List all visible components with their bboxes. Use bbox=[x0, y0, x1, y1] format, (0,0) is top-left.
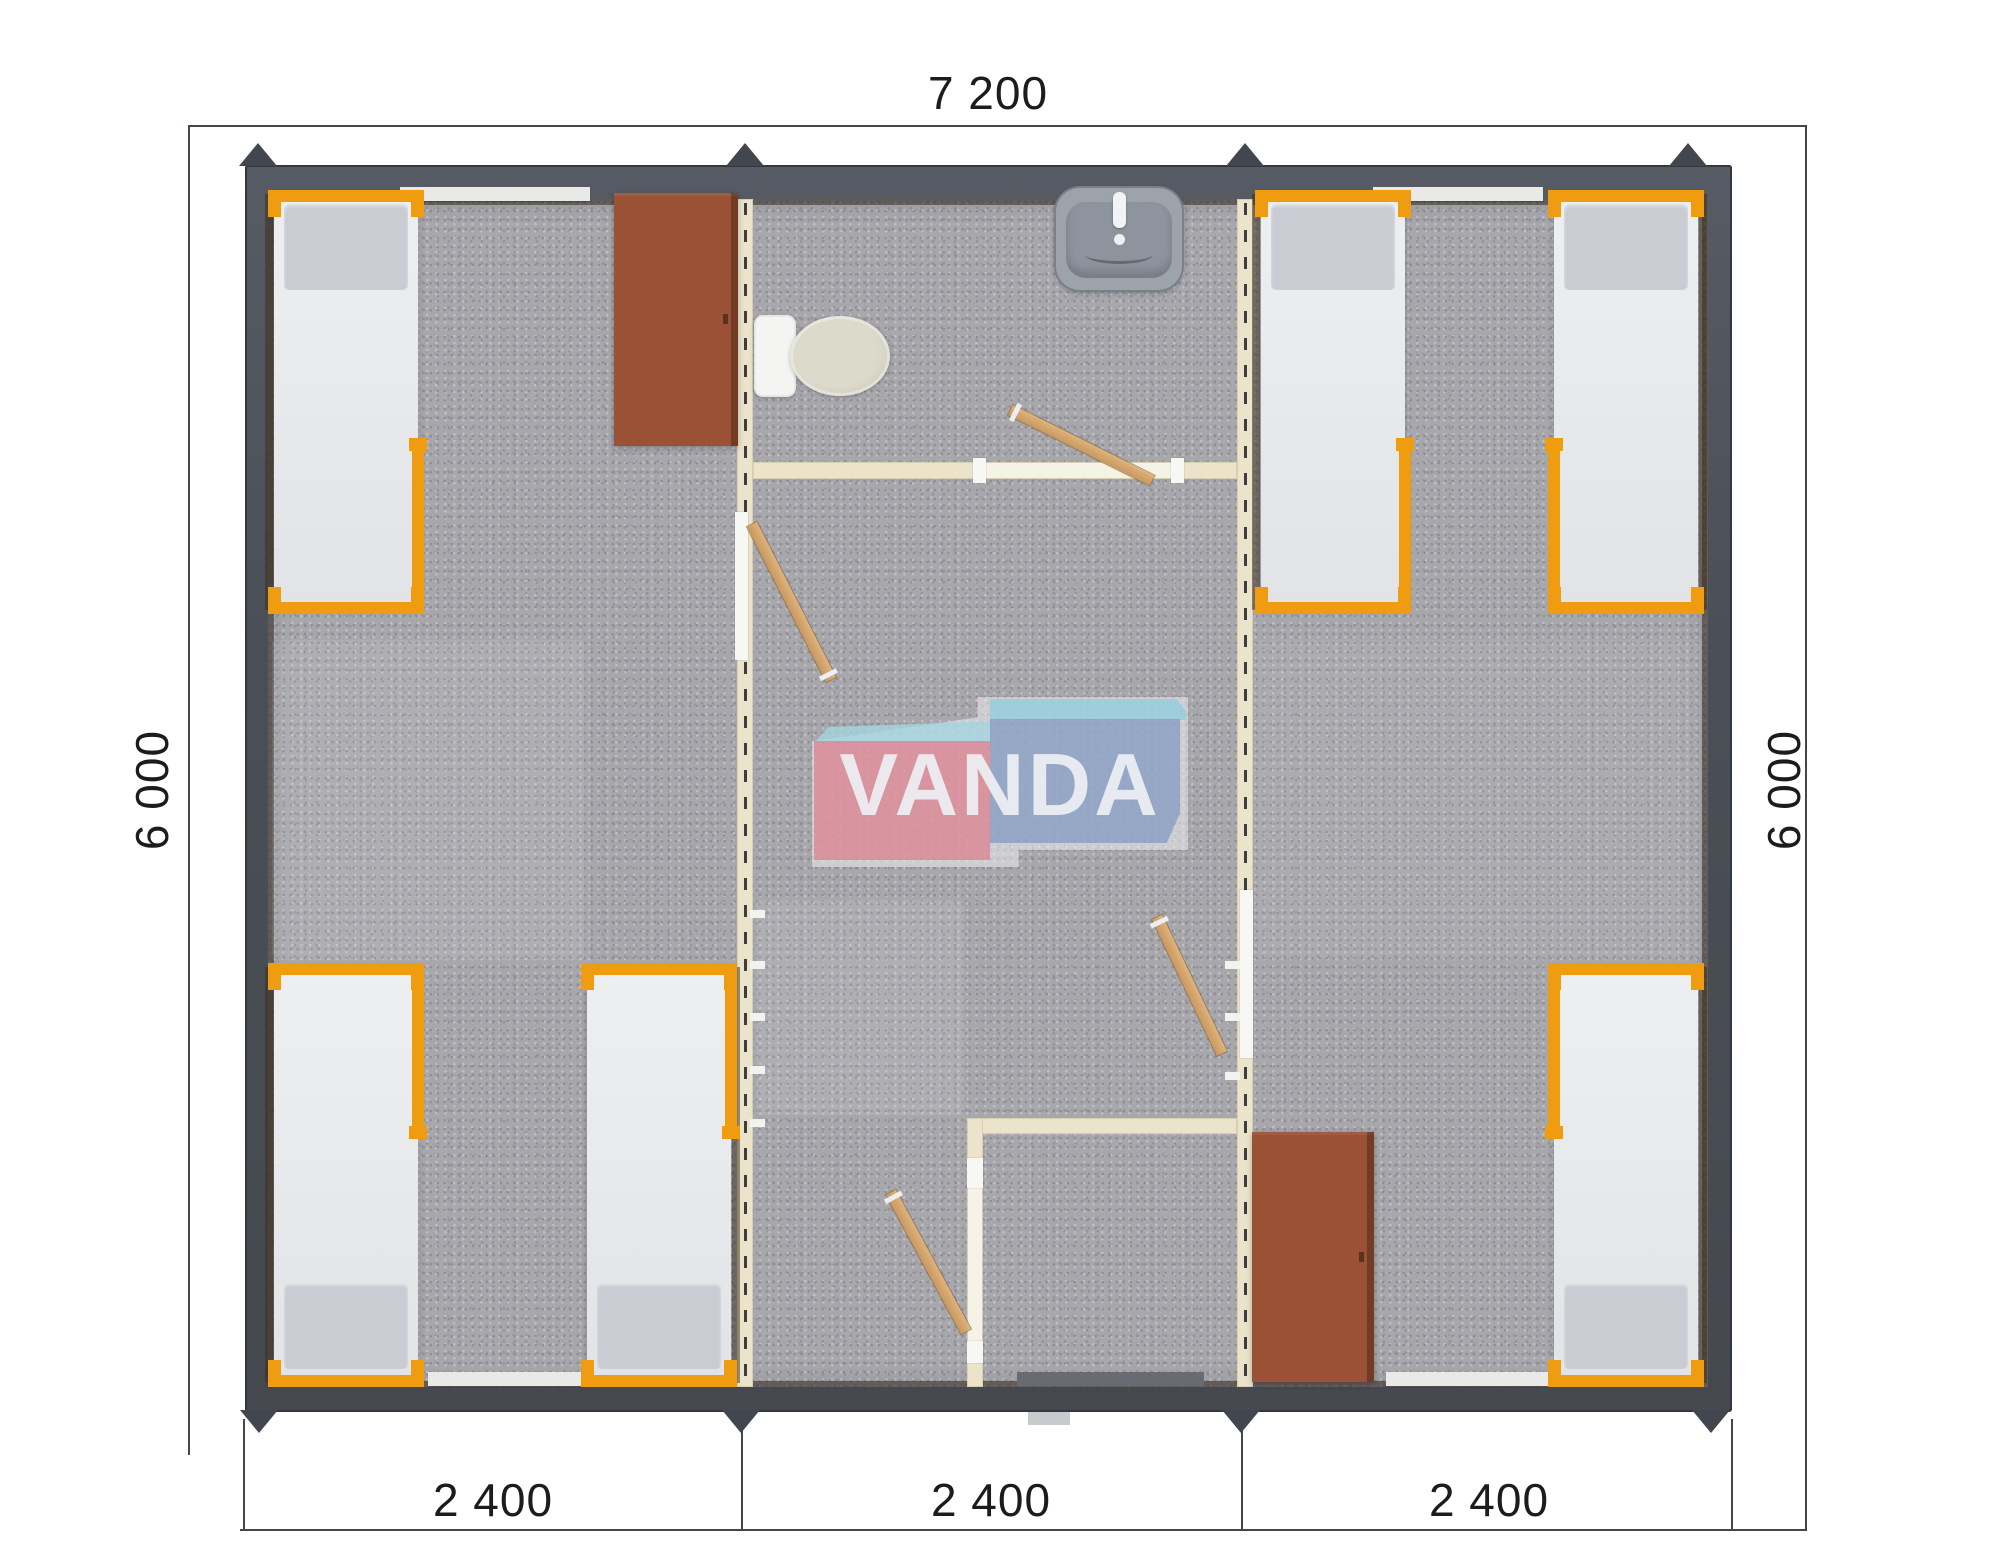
drain-icon bbox=[1114, 234, 1125, 245]
dimension-line-bottom bbox=[240, 1529, 1807, 1531]
roof-marker bbox=[1692, 1410, 1730, 1433]
watermark-blue-box-top bbox=[990, 699, 1186, 720]
bed-frame-rail bbox=[268, 602, 424, 614]
dimension-label-right: 6 000 bbox=[1757, 690, 1811, 890]
bed-frame-rail bbox=[1548, 602, 1704, 614]
door-jamb bbox=[1171, 458, 1184, 483]
roof-marker bbox=[722, 1410, 760, 1433]
bed-shadow bbox=[265, 194, 273, 610]
panel-joint bbox=[1225, 1013, 1240, 1021]
shower-room-wall-top bbox=[967, 1118, 1237, 1134]
floor-plan-canvas: 7 200 6 000 6 000 2 400 2 400 2 400 bbox=[0, 0, 2000, 1566]
dimension-label-top: 7 200 bbox=[888, 66, 1088, 120]
roof-marker bbox=[1669, 143, 1707, 166]
roof-marker bbox=[240, 1410, 278, 1433]
wardrobe-right-room bbox=[1252, 1132, 1374, 1382]
bed-frame-rail bbox=[1399, 442, 1411, 602]
dimension-tick bbox=[741, 1419, 743, 1531]
bed-frame-rail bbox=[1548, 963, 1704, 975]
window-strip bbox=[428, 1372, 583, 1386]
panel-joint bbox=[750, 910, 765, 918]
toilet-bowl bbox=[790, 316, 890, 396]
bed-shadow bbox=[1699, 967, 1707, 1383]
panel-joint bbox=[1225, 961, 1240, 969]
partition-wall-right bbox=[1237, 199, 1253, 1387]
wardrobe-left-room bbox=[614, 193, 738, 446]
dimension-label-bottom-2: 2 400 bbox=[891, 1473, 1091, 1527]
window-strip bbox=[400, 187, 590, 201]
door-jamb bbox=[735, 512, 748, 660]
vanda-watermark: VANDA bbox=[812, 697, 1188, 867]
bed-frame-rail bbox=[1548, 190, 1704, 202]
entrance-step bbox=[1028, 1412, 1070, 1425]
dimension-tick bbox=[1241, 1419, 1243, 1531]
faucet-icon bbox=[1113, 192, 1126, 228]
dimension-line-left bbox=[188, 125, 190, 1455]
pillow bbox=[1564, 204, 1688, 290]
bed-frame-rail bbox=[268, 190, 424, 202]
bed-frame-rail bbox=[725, 975, 737, 1135]
bed-frame-rail bbox=[1548, 1375, 1704, 1387]
bed-left-bottom bbox=[268, 963, 424, 1387]
dimension-tick bbox=[243, 1419, 245, 1531]
panel-joint bbox=[750, 1013, 765, 1021]
bed-shadow bbox=[1252, 194, 1260, 610]
bed-left-middle bbox=[581, 963, 737, 1387]
roof-marker bbox=[1222, 1410, 1260, 1433]
bed-frame-rail bbox=[1548, 442, 1560, 602]
bed-frame-rail bbox=[412, 442, 424, 602]
wardrobe-handle bbox=[723, 314, 728, 324]
dimension-line-top bbox=[189, 125, 1807, 127]
bed-left-top bbox=[268, 190, 424, 614]
pillow bbox=[597, 1283, 721, 1369]
bed-frame-rail bbox=[1255, 190, 1411, 202]
wardrobe-handle bbox=[1359, 1252, 1364, 1262]
panel-joint bbox=[750, 1119, 765, 1127]
floor-highlight bbox=[272, 640, 584, 960]
bed-frame-rail bbox=[412, 975, 424, 1135]
panel-joint bbox=[750, 1066, 765, 1074]
washbasin bbox=[1054, 186, 1184, 292]
dimension-label-left: 6 000 bbox=[125, 690, 179, 890]
door-jamb bbox=[973, 458, 986, 483]
panel-joint bbox=[1225, 1072, 1240, 1080]
bed-frame-rail bbox=[1548, 975, 1560, 1135]
bed-right-bottom bbox=[1548, 963, 1704, 1387]
shower-door-opening bbox=[968, 1186, 982, 1343]
door-jamb bbox=[967, 1341, 983, 1363]
floor-highlight bbox=[756, 900, 964, 1115]
pillow bbox=[284, 1283, 408, 1369]
door-jamb bbox=[1240, 890, 1253, 1058]
roof-marker bbox=[239, 143, 277, 166]
panel-joint bbox=[750, 961, 765, 969]
bed-shadow bbox=[1699, 194, 1707, 610]
bed-frame-rail bbox=[581, 963, 737, 975]
dimension-tick bbox=[1731, 1419, 1733, 1531]
roof-marker bbox=[726, 143, 764, 166]
bed-frame-rail bbox=[268, 963, 424, 975]
bed-shadow bbox=[265, 967, 273, 1383]
bed-right-top-inner bbox=[1255, 190, 1411, 614]
bed-right-top-outer bbox=[1548, 190, 1704, 614]
entrance-door-band bbox=[1017, 1372, 1204, 1386]
dimension-label-bottom-3: 2 400 bbox=[1389, 1473, 1589, 1527]
toilet bbox=[754, 310, 894, 402]
door-jamb bbox=[967, 1158, 983, 1188]
pillow bbox=[284, 204, 408, 290]
floor-highlight bbox=[1258, 640, 1702, 958]
watermark-text: VANDA bbox=[812, 733, 1188, 837]
window-strip bbox=[1386, 1372, 1551, 1386]
bed-frame-rail bbox=[268, 1375, 424, 1387]
pillow bbox=[1564, 1283, 1688, 1369]
roof-marker bbox=[1226, 143, 1264, 166]
dimension-label-bottom-1: 2 400 bbox=[393, 1473, 593, 1527]
bed-frame-rail bbox=[581, 1375, 737, 1387]
bed-frame-rail bbox=[1255, 602, 1411, 614]
pillow bbox=[1271, 204, 1395, 290]
